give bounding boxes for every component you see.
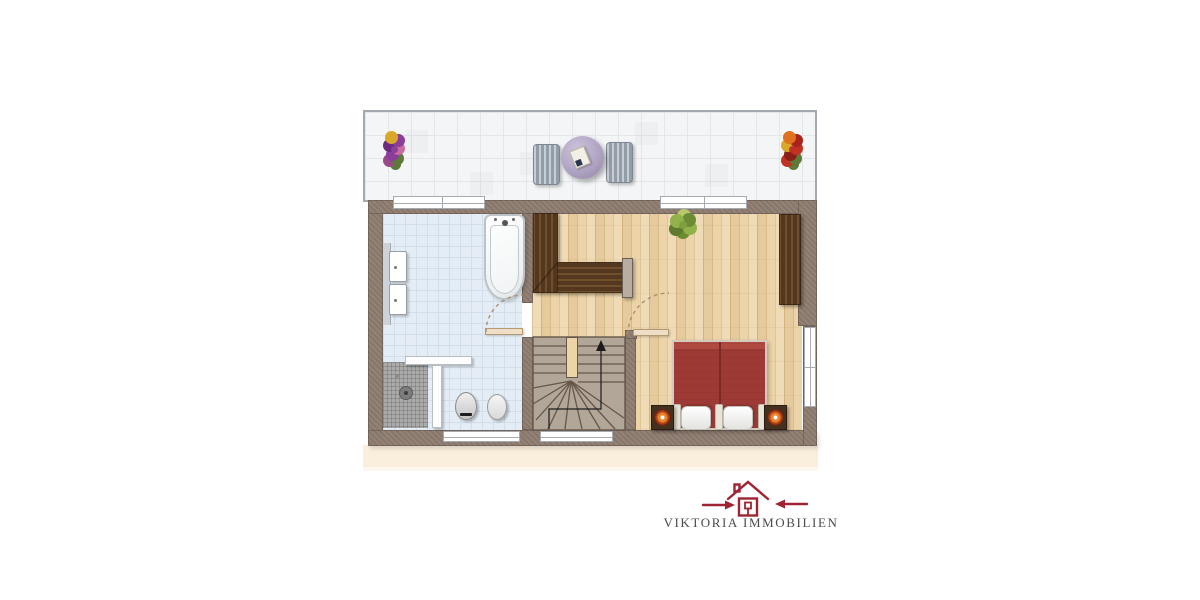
lounger-right-icon bbox=[606, 142, 633, 183]
wall-stair-right bbox=[625, 337, 636, 430]
terrace-tile-patch bbox=[705, 164, 728, 187]
wall-stair-left bbox=[522, 337, 533, 430]
nightstand-left-icon bbox=[651, 405, 674, 430]
shower-partition-vertical bbox=[432, 365, 442, 428]
bathtub-icon bbox=[484, 214, 525, 300]
bathtub-tap-icon bbox=[512, 218, 515, 221]
bed-rail bbox=[673, 404, 681, 430]
nightstand-right-icon bbox=[764, 405, 787, 430]
window-mullion bbox=[704, 197, 705, 208]
wall-left bbox=[368, 200, 383, 446]
plan-ground-shadow-fade bbox=[363, 467, 818, 471]
logo-arrow-right-icon bbox=[775, 500, 807, 509]
toilet-icon bbox=[455, 392, 477, 420]
wardrobe-end-cap bbox=[622, 258, 633, 298]
viktoria-immobilien-logo-icon bbox=[695, 476, 815, 520]
bathtub-tap-icon bbox=[494, 218, 497, 221]
bidet-icon bbox=[487, 394, 507, 420]
logo-arrow-left-icon bbox=[703, 501, 735, 510]
terrace-tile-patch bbox=[470, 172, 493, 195]
wardrobe-l-vertical-icon bbox=[533, 213, 558, 293]
bathtub-faucet-icon bbox=[502, 220, 508, 226]
plant-icon bbox=[679, 221, 687, 229]
terrace-tile-patch bbox=[635, 122, 658, 145]
wardrobe-l-horizontal-icon bbox=[557, 262, 623, 293]
window-mullion bbox=[442, 197, 443, 208]
window-bedroom-top bbox=[660, 196, 747, 209]
plan-ground-shadow bbox=[363, 445, 818, 467]
flower-pot-right-icon bbox=[789, 146, 796, 153]
washbasin-icon bbox=[389, 251, 407, 282]
bedroom-door-leaf bbox=[633, 329, 669, 336]
shower-drain-icon bbox=[399, 386, 413, 400]
pillow-icon bbox=[723, 406, 753, 430]
window-bathroom-bottom bbox=[443, 431, 520, 442]
window-bedroom-right bbox=[804, 327, 816, 407]
flower-pot-left-icon bbox=[391, 146, 398, 153]
shower-fitting-icon bbox=[395, 374, 399, 378]
logo-house-icon bbox=[728, 482, 768, 516]
washbasin-icon bbox=[389, 284, 407, 315]
terrace-tile-patch bbox=[405, 130, 428, 153]
wardrobe-right-icon bbox=[779, 214, 801, 305]
window-mullion bbox=[805, 367, 815, 368]
window-bathroom-top bbox=[393, 196, 485, 209]
logo-text: VIKTORIA IMMOBILIEN bbox=[651, 515, 851, 531]
bathtub-basin bbox=[490, 225, 519, 294]
pillow-icon bbox=[681, 406, 711, 430]
bathroom-door-leaf bbox=[485, 328, 523, 335]
window-stair-bottom bbox=[540, 431, 613, 442]
bed-rail bbox=[715, 404, 723, 430]
shower-partition-top bbox=[405, 356, 472, 365]
lounger-left-icon bbox=[533, 144, 560, 185]
floor-plan-canvas: VIKTORIA IMMOBILIEN bbox=[0, 0, 1200, 600]
